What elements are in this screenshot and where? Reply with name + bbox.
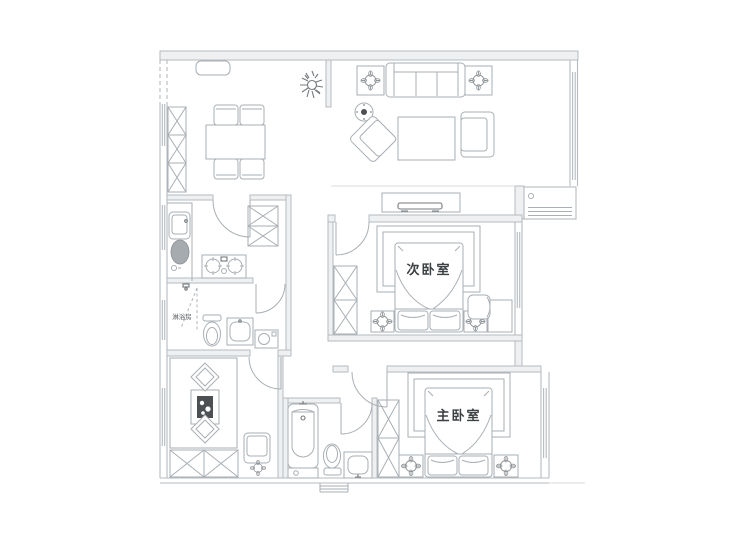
- master-bath-top-wall: [283, 398, 340, 403]
- entry-opening-dashed: [160, 60, 167, 104]
- dining-area: [168, 61, 265, 192]
- bath-tea-divider: [167, 350, 250, 356]
- master-toilet: [324, 444, 342, 475]
- armchair-right: [461, 112, 494, 157]
- kitchen-bath-right-wall: [286, 195, 291, 352]
- door-jamb: [328, 215, 335, 222]
- fridge: [248, 206, 278, 246]
- entry-steps: [320, 483, 348, 492]
- master-bedroom-label: 主卧室: [436, 408, 481, 424]
- master-wardrobe: [378, 400, 399, 477]
- secondary-wardrobe: [334, 266, 357, 334]
- kitchen-bath-divider: [167, 278, 253, 283]
- wall-connector: [278, 350, 291, 356]
- floor-plan-page: 淋浴房: [0, 0, 740, 555]
- secondary-nightstand-left: [371, 311, 394, 332]
- right-wall-master-bedroom: [541, 372, 549, 478]
- right-wall-secondary-bedroom: [515, 219, 522, 338]
- shower-room-label: 淋浴房: [172, 312, 192, 321]
- pillow: [430, 311, 460, 330]
- bathtub: [288, 401, 318, 478]
- tv: [398, 203, 442, 209]
- door-kitchen: [213, 200, 250, 237]
- master-nightstand-left: [399, 455, 423, 477]
- pillow: [459, 456, 488, 475]
- master-top-wall-right: [387, 366, 541, 372]
- wall-segment: [515, 338, 522, 369]
- kitchen-sink: [169, 212, 190, 264]
- dining-table: [206, 125, 265, 159]
- door-guest-bath: [256, 284, 285, 313]
- wall-stub: [515, 186, 524, 219]
- side-table-lamp-right: [465, 66, 492, 95]
- window-guest-bath: [162, 300, 164, 340]
- desk: [488, 300, 512, 332]
- tv-cabinet: [382, 193, 460, 212]
- entry-mat: [196, 61, 230, 75]
- top-exterior-wall: [160, 51, 578, 60]
- desk-chair: [468, 295, 490, 319]
- equipment-platform: [524, 187, 576, 219]
- guest-vanity: [227, 318, 253, 345]
- master-bath-right-wall: [372, 398, 377, 478]
- window-tea-room: [162, 388, 164, 446]
- secondary-bedroom-left-wall: [328, 222, 333, 340]
- master-bedroom: 主卧室: [378, 373, 518, 477]
- window-living-room: [573, 72, 576, 180]
- dining-chairs: [214, 105, 264, 179]
- window-dining: [162, 104, 164, 146]
- master-bed: [425, 388, 492, 477]
- tea-storage-cabinet: [170, 450, 238, 477]
- kitchen-top-wall-left: [167, 195, 213, 200]
- guest-bathroom: 淋浴房: [172, 284, 278, 348]
- window-secondary-bedroom: [517, 232, 519, 308]
- floor-cushion-top: [191, 363, 219, 391]
- secondary-bed: [395, 243, 463, 332]
- storage-cabinet: [168, 107, 186, 192]
- master-bath-left-wall: [283, 398, 288, 478]
- bottom-exterior-wall: [160, 478, 549, 483]
- door-tea-room: [249, 357, 281, 389]
- pillow: [428, 456, 457, 475]
- floor-plan-svg: 淋浴房: [0, 0, 740, 555]
- secondary-bedroom-top-wall: [369, 215, 522, 222]
- door-master-bath: [341, 403, 372, 434]
- master-basin: [344, 452, 372, 478]
- sofa: [386, 63, 465, 97]
- door-master-bedroom: [352, 372, 387, 407]
- kitchen-top-wall-right: [250, 195, 291, 200]
- tea-chair: [244, 433, 270, 463]
- drain-symbol: [529, 194, 534, 199]
- kitchen: [167, 203, 278, 281]
- left-exterior-wall: [160, 104, 167, 478]
- secondary-bedroom-bottom-wall: [328, 335, 522, 341]
- secondary-bedroom-label: 次卧室: [406, 262, 451, 278]
- shower-area: [181, 284, 197, 330]
- pillow: [398, 311, 428, 330]
- secondary-bedroom: 次卧室: [334, 226, 512, 334]
- plant: [300, 71, 323, 98]
- side-table-lamp-left: [357, 66, 384, 95]
- guest-toilet: [203, 315, 221, 346]
- floor-drain: [172, 266, 182, 271]
- master-top-wall-left: [333, 366, 348, 372]
- master-nightstand-right: [494, 455, 518, 477]
- armchair-rotated: [349, 115, 397, 163]
- washing-machine: [255, 330, 278, 348]
- coffee-table: [398, 117, 455, 160]
- right-exterior-wall-living: [570, 60, 578, 186]
- door-secondary-bedroom: [336, 222, 369, 255]
- window-kitchen: [162, 205, 164, 250]
- stove: [202, 255, 246, 278]
- dining-living-partition: [326, 60, 331, 107]
- window-master-bedroom: [544, 388, 547, 458]
